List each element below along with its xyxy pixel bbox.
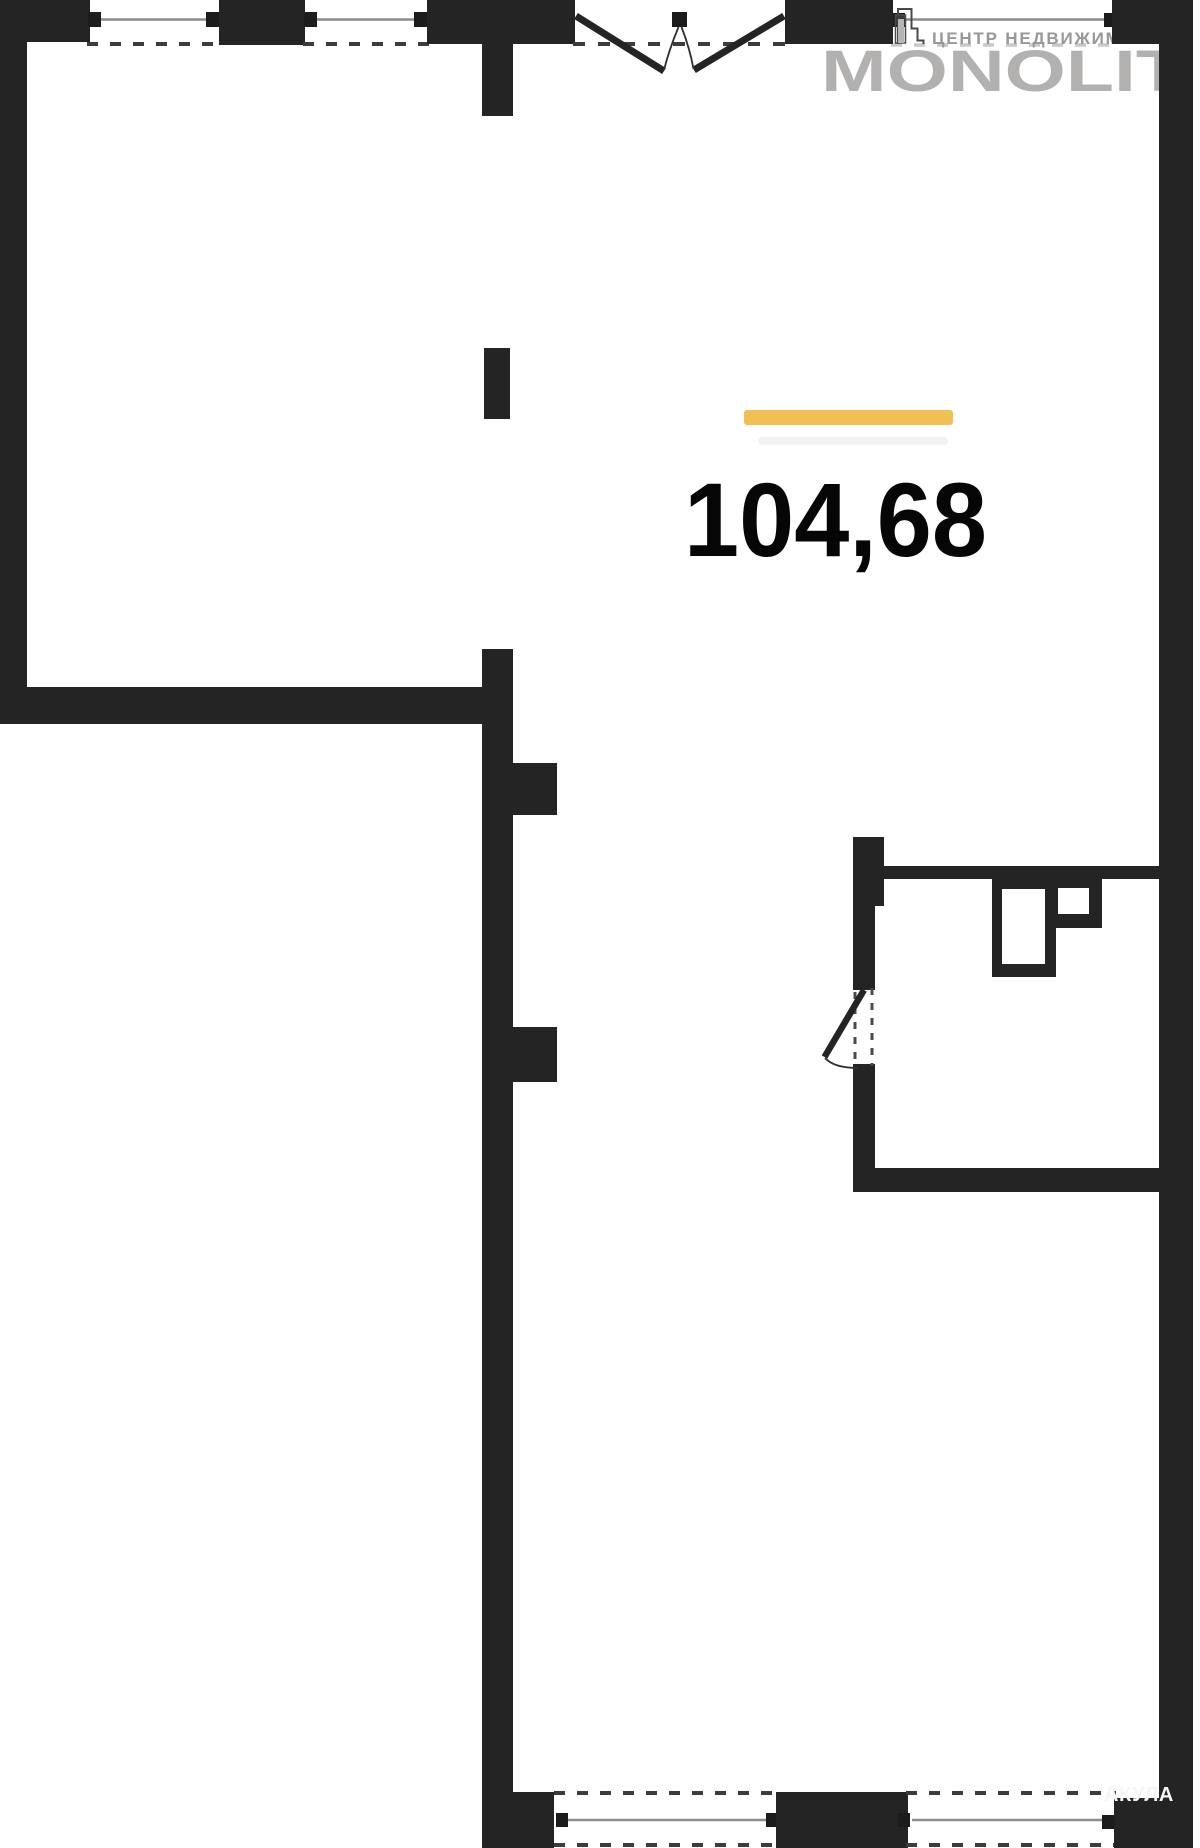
svg-text:104,68: 104,68 (684, 462, 987, 579)
svg-text:MONOLIT: MONOLIT (821, 39, 1184, 104)
svg-text:АКУЛА: АКУЛА (1104, 1784, 1174, 1806)
